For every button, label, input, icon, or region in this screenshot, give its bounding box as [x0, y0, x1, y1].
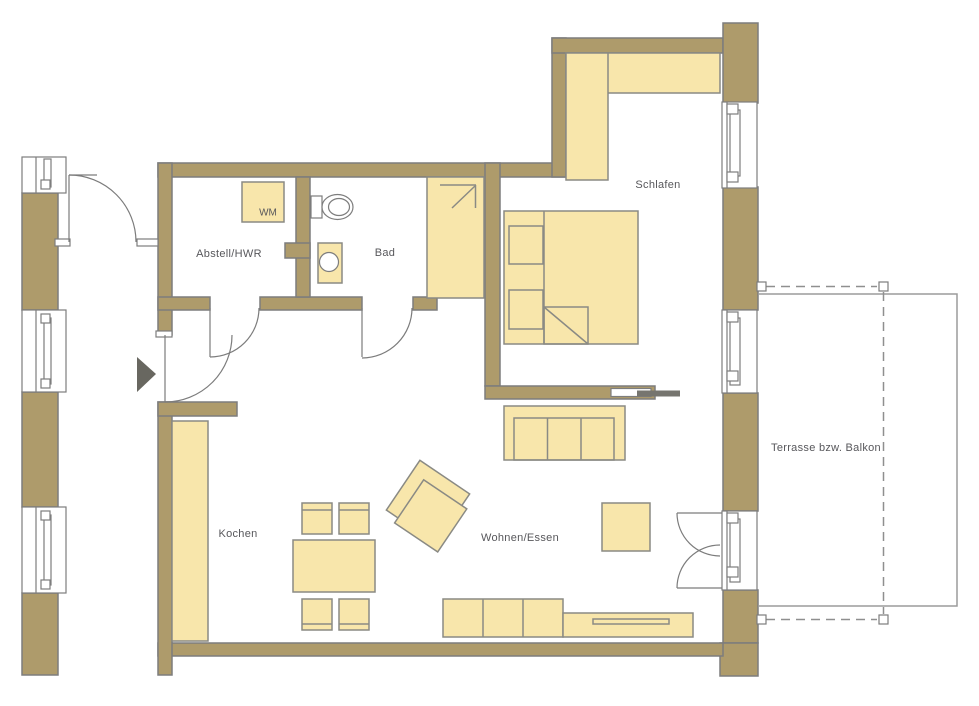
shower — [427, 177, 484, 298]
bath-door-icon — [362, 308, 412, 358]
hall-door-icon — [156, 331, 232, 402]
balcony-door-window-icon — [722, 511, 757, 590]
bed — [504, 211, 638, 344]
washbasin-icon — [318, 243, 342, 283]
entry-door-icon — [55, 175, 158, 246]
window-icon — [722, 102, 757, 188]
room-label-bad: Bad — [375, 247, 395, 259]
room-label-kochen: Kochen — [218, 528, 257, 540]
sideboard — [443, 599, 693, 637]
appliance-label-wm: WM — [259, 208, 277, 219]
walls — [158, 23, 758, 676]
entry-arrow-icon — [137, 357, 156, 392]
wardrobe — [566, 53, 720, 180]
balcony-door-swing-icon — [677, 513, 722, 588]
floor-plan: Abstell/HWR Bad Schlafen Kochen Wohnen/E… — [0, 0, 979, 706]
room-label-wohnen-essen: Wohnen/Essen — [481, 532, 559, 544]
side-table — [602, 503, 650, 551]
room-label-terrasse: Terrasse bzw. Balkon — [771, 442, 881, 454]
room-label-schlafen: Schlafen — [635, 179, 680, 191]
storage-door-icon — [210, 308, 259, 357]
exterior-window-wall — [22, 157, 66, 675]
kitchen-counter — [172, 421, 208, 641]
room-label-abstell-hwr: Abstell/HWR — [196, 248, 262, 260]
sliding-door-icon — [611, 389, 680, 397]
floor-plan-drawing — [0, 0, 979, 706]
toilet-icon — [311, 195, 353, 220]
dining-set — [293, 503, 375, 630]
window-icon — [22, 507, 66, 593]
window-icon — [22, 157, 66, 193]
window-icon — [22, 310, 66, 392]
sofa — [504, 406, 625, 460]
window-icon — [722, 310, 757, 393]
armchair — [383, 460, 475, 552]
